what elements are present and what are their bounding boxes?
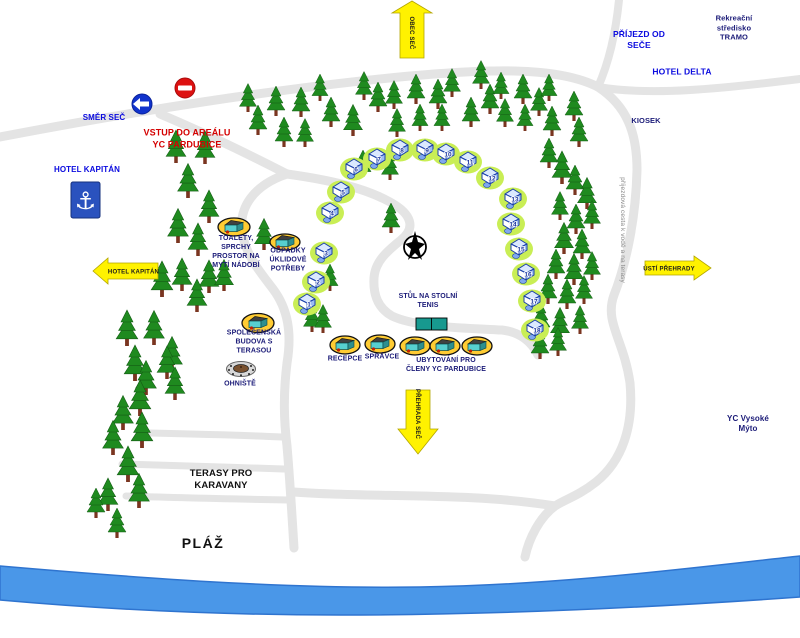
arrow-prehrada-sec: PŘEHRADA SEČ [398, 389, 438, 454]
road-bottom-connector [294, 492, 555, 506]
pine-tree-icon [429, 79, 447, 109]
one-way-sign-icon [132, 94, 152, 114]
cabin-number: 5 [341, 190, 345, 197]
ubytovani-building-1 [400, 337, 430, 355]
spolecenska-building [242, 314, 274, 333]
cabin-number: 9 [425, 148, 429, 155]
road-to-tramo [598, 79, 800, 91]
spravce-building [365, 335, 395, 353]
pine-tree-icon [583, 252, 600, 281]
arrow-usti-prehrady-label: ÚSTÍ PŘEHRADY [643, 265, 695, 273]
pine-tree-icon [344, 105, 363, 137]
pine-tree-icon [103, 421, 124, 456]
cabin-4: 4 [316, 202, 344, 225]
pine-tree-icon [178, 164, 199, 199]
pine-tree-icon [552, 151, 572, 184]
pine-tree-icon [322, 97, 340, 127]
road-terrace-2 [122, 464, 284, 469]
cabin-number: 4 [330, 211, 334, 218]
cabin-14: 14 [497, 213, 525, 236]
cabin-15: 15 [505, 238, 533, 261]
pine-tree-icon [496, 99, 513, 128]
arrow-usti-prehrady: ÚSTÍ PŘEHRADY [643, 256, 711, 280]
arrow-hotel-kapitan-label: HOTEL KAPITÁN [108, 269, 159, 276]
no-entry-sign-icon [175, 78, 195, 98]
recepce-building [330, 336, 360, 354]
pine-tree-icon [144, 311, 165, 346]
odpadky-building [270, 234, 300, 250]
cabin-2: 2 [302, 271, 330, 294]
pine-tree-icon [540, 138, 558, 168]
pine-tree-icon [462, 97, 480, 127]
cabin-number: 8 [400, 148, 404, 155]
cabin-16: 16 [512, 263, 540, 286]
pine-tree-icon [168, 209, 189, 244]
pine-tree-icon [116, 310, 138, 346]
road-terrace-1 [150, 433, 282, 437]
table-tennis-icon [416, 318, 447, 330]
cabin-17: 17 [518, 290, 546, 313]
fire-pit-icon [227, 362, 256, 377]
toalety-building [218, 218, 250, 236]
cabin-13: 13 [499, 188, 527, 211]
hotel-kapitan-plaque: ⚓ [71, 182, 100, 218]
arrow-obec-sec: OBEC SEČ [392, 1, 432, 58]
pine-tree-icon [129, 474, 150, 509]
cabin-5: 5 [327, 181, 355, 204]
cabin-arc: 123456789101112131415161718 [293, 139, 549, 342]
ubytovani-building-3 [462, 337, 492, 355]
cabin-number: 6 [354, 167, 358, 174]
anchor-icon: ⚓ [75, 187, 97, 215]
pine-tree-icon [388, 109, 405, 138]
cabin-number: 10 [444, 152, 452, 159]
cabin-11: 11 [454, 151, 482, 174]
cabin-8: 8 [386, 139, 414, 162]
pine-tree-icon [369, 82, 387, 112]
cabin-12: 12 [476, 167, 504, 190]
cabin-number: 11 [467, 160, 474, 167]
pine-tree-icon [551, 192, 568, 221]
pine-tree-icon [172, 258, 192, 291]
pine-tree-icon [296, 119, 313, 148]
pine-tree-icon [249, 105, 267, 135]
pine-tree-icon [188, 223, 208, 256]
pine-tree-icon [570, 117, 588, 147]
cabin-number: 16 [524, 272, 532, 279]
pine-tree-icon [493, 72, 509, 99]
pine-tree-icon [565, 91, 583, 121]
pine-tree-icon [571, 306, 588, 335]
pine-tree-icon [575, 276, 592, 305]
pine-tree-icon [434, 104, 450, 131]
cabin-number: 17 [530, 299, 538, 306]
pine-tree-icon [514, 74, 532, 104]
pine-tree-icon [113, 396, 134, 431]
pine-tree-icon [166, 130, 186, 163]
cabin-number: 14 [509, 222, 517, 229]
cabin-number: 15 [517, 247, 525, 254]
arrow-obec-sec-label: OBEC SEČ [408, 17, 415, 50]
pine-tree-icon [108, 508, 126, 538]
pine-tree-icon [275, 117, 293, 147]
pine-tree-icon [547, 249, 565, 279]
cabin-1: 1 [293, 293, 321, 316]
cabin-number: 3 [324, 251, 328, 258]
cabin-number: 18 [533, 328, 541, 335]
pine-tree-icon [385, 81, 402, 110]
ubytovani-building-2 [430, 337, 460, 355]
cabin-number: 1 [307, 302, 311, 309]
water-lake [0, 556, 800, 615]
cabin-18: 18 [521, 319, 549, 342]
cabin-number: 7 [377, 157, 381, 164]
cabin-number: 13 [511, 197, 519, 204]
road-terrace-3 [126, 496, 288, 500]
pine-tree-icon [199, 260, 219, 293]
cabin-number: 12 [488, 176, 496, 183]
arrow-prehrada-sec-label: PŘEHRADA SEČ [414, 389, 422, 440]
cabin-3: 3 [310, 242, 338, 265]
pine-tree-icon [412, 104, 428, 131]
pine-tree-icon [517, 104, 533, 131]
campground-map: 123456789101112131415161718 ⚓ [0, 0, 800, 638]
pine-tree-icon [199, 190, 219, 223]
cabin-number: 2 [316, 280, 320, 287]
road-to-obec-sec [598, 0, 619, 87]
arrow-hotel-kapitan: HOTEL KAPITÁN [93, 258, 159, 284]
